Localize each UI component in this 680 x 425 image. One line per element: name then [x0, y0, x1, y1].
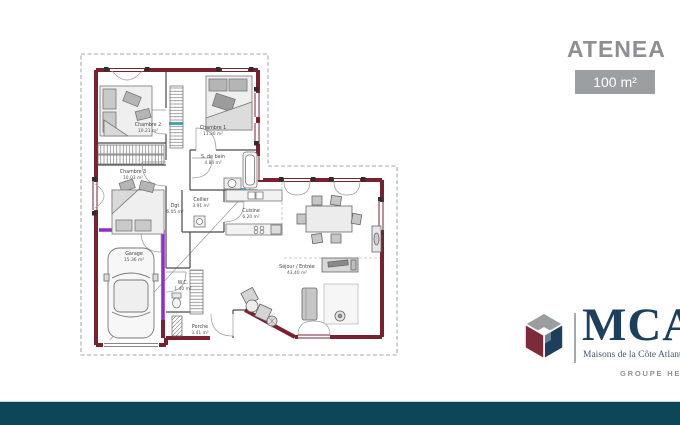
room-area: 10.21 m²	[138, 128, 158, 134]
room-name: Garage	[125, 251, 143, 257]
room-name: Chambre 1	[200, 125, 226, 131]
bed-icon-chambre1	[206, 76, 252, 130]
room-label-porche: Porche 3.41 m²	[191, 324, 208, 336]
dining-table-icon	[297, 195, 362, 243]
room-name: Cuisine	[242, 208, 260, 214]
room-label-wc: W.C. 1.40 m²	[174, 280, 191, 292]
room-area: 10.03 m²	[123, 175, 143, 181]
room-name: Chambre 2	[135, 122, 161, 128]
plan-title: ATENEA	[567, 36, 677, 63]
bed-icon-chambre3	[112, 179, 164, 234]
room-name: Chambre 3	[120, 169, 146, 175]
washer-icon	[194, 216, 205, 227]
room-label-sdb: S. de bain 4.84 m²	[201, 154, 225, 166]
room-label-cuisine: Cuisine 6.20 m²	[242, 208, 260, 220]
room-name: Séjour / Entrée	[279, 263, 315, 270]
room-name: Porche	[192, 324, 208, 330]
room-area: 6.20 m²	[242, 214, 259, 220]
room-label-cellier: Cellier 3.91 m²	[192, 197, 209, 209]
room-label-dgt: Dgt 6.05 m²	[166, 203, 183, 215]
room-name: S. de bain	[201, 154, 225, 160]
room-label-sejour: Séjour / Entrée 43.40 m²	[279, 263, 315, 276]
logo-group-label: GROUPE HEXAOM	[620, 369, 680, 378]
room-area: 4.84 m²	[204, 160, 221, 166]
toilet-icon	[172, 293, 181, 308]
tv-unit-icon	[322, 258, 358, 272]
footer-band	[0, 402, 680, 425]
room-label-chambre3: Chambre 3 10.03 m²	[120, 169, 146, 181]
room-area: 11.30 m²	[203, 131, 223, 137]
floor-plan: Chambre 2 10.21 m² Chambre 1 11.30 m² Ch…	[0, 0, 680, 425]
area-badge: 100 m²	[575, 70, 655, 94]
room-area: 6.05 m²	[166, 209, 183, 215]
bathtub-icon	[224, 152, 257, 189]
sofa-icon	[302, 284, 358, 324]
logo-divider	[574, 313, 576, 363]
room-area: 3.91 m²	[192, 203, 209, 209]
room-name: W.C.	[178, 280, 189, 286]
room-label-chambre1: Chambre 1 11.30 m²	[200, 125, 226, 137]
room-area: 15.36 m²	[124, 257, 144, 263]
room-area: 1.40 m²	[174, 286, 191, 292]
room-area: 43.40 m²	[287, 270, 307, 276]
logo-tagline: Maisons de la Côte Atlantique	[583, 350, 680, 360]
cabinet-icon	[372, 226, 381, 252]
room-name: Cellier	[193, 197, 208, 203]
logo-wordmark: MCA	[582, 298, 680, 352]
mca-cube-icon	[520, 310, 570, 364]
room-area: 3.41 m²	[191, 330, 208, 336]
room-name: Dgt	[171, 203, 180, 209]
armchairs-icon	[241, 287, 277, 328]
